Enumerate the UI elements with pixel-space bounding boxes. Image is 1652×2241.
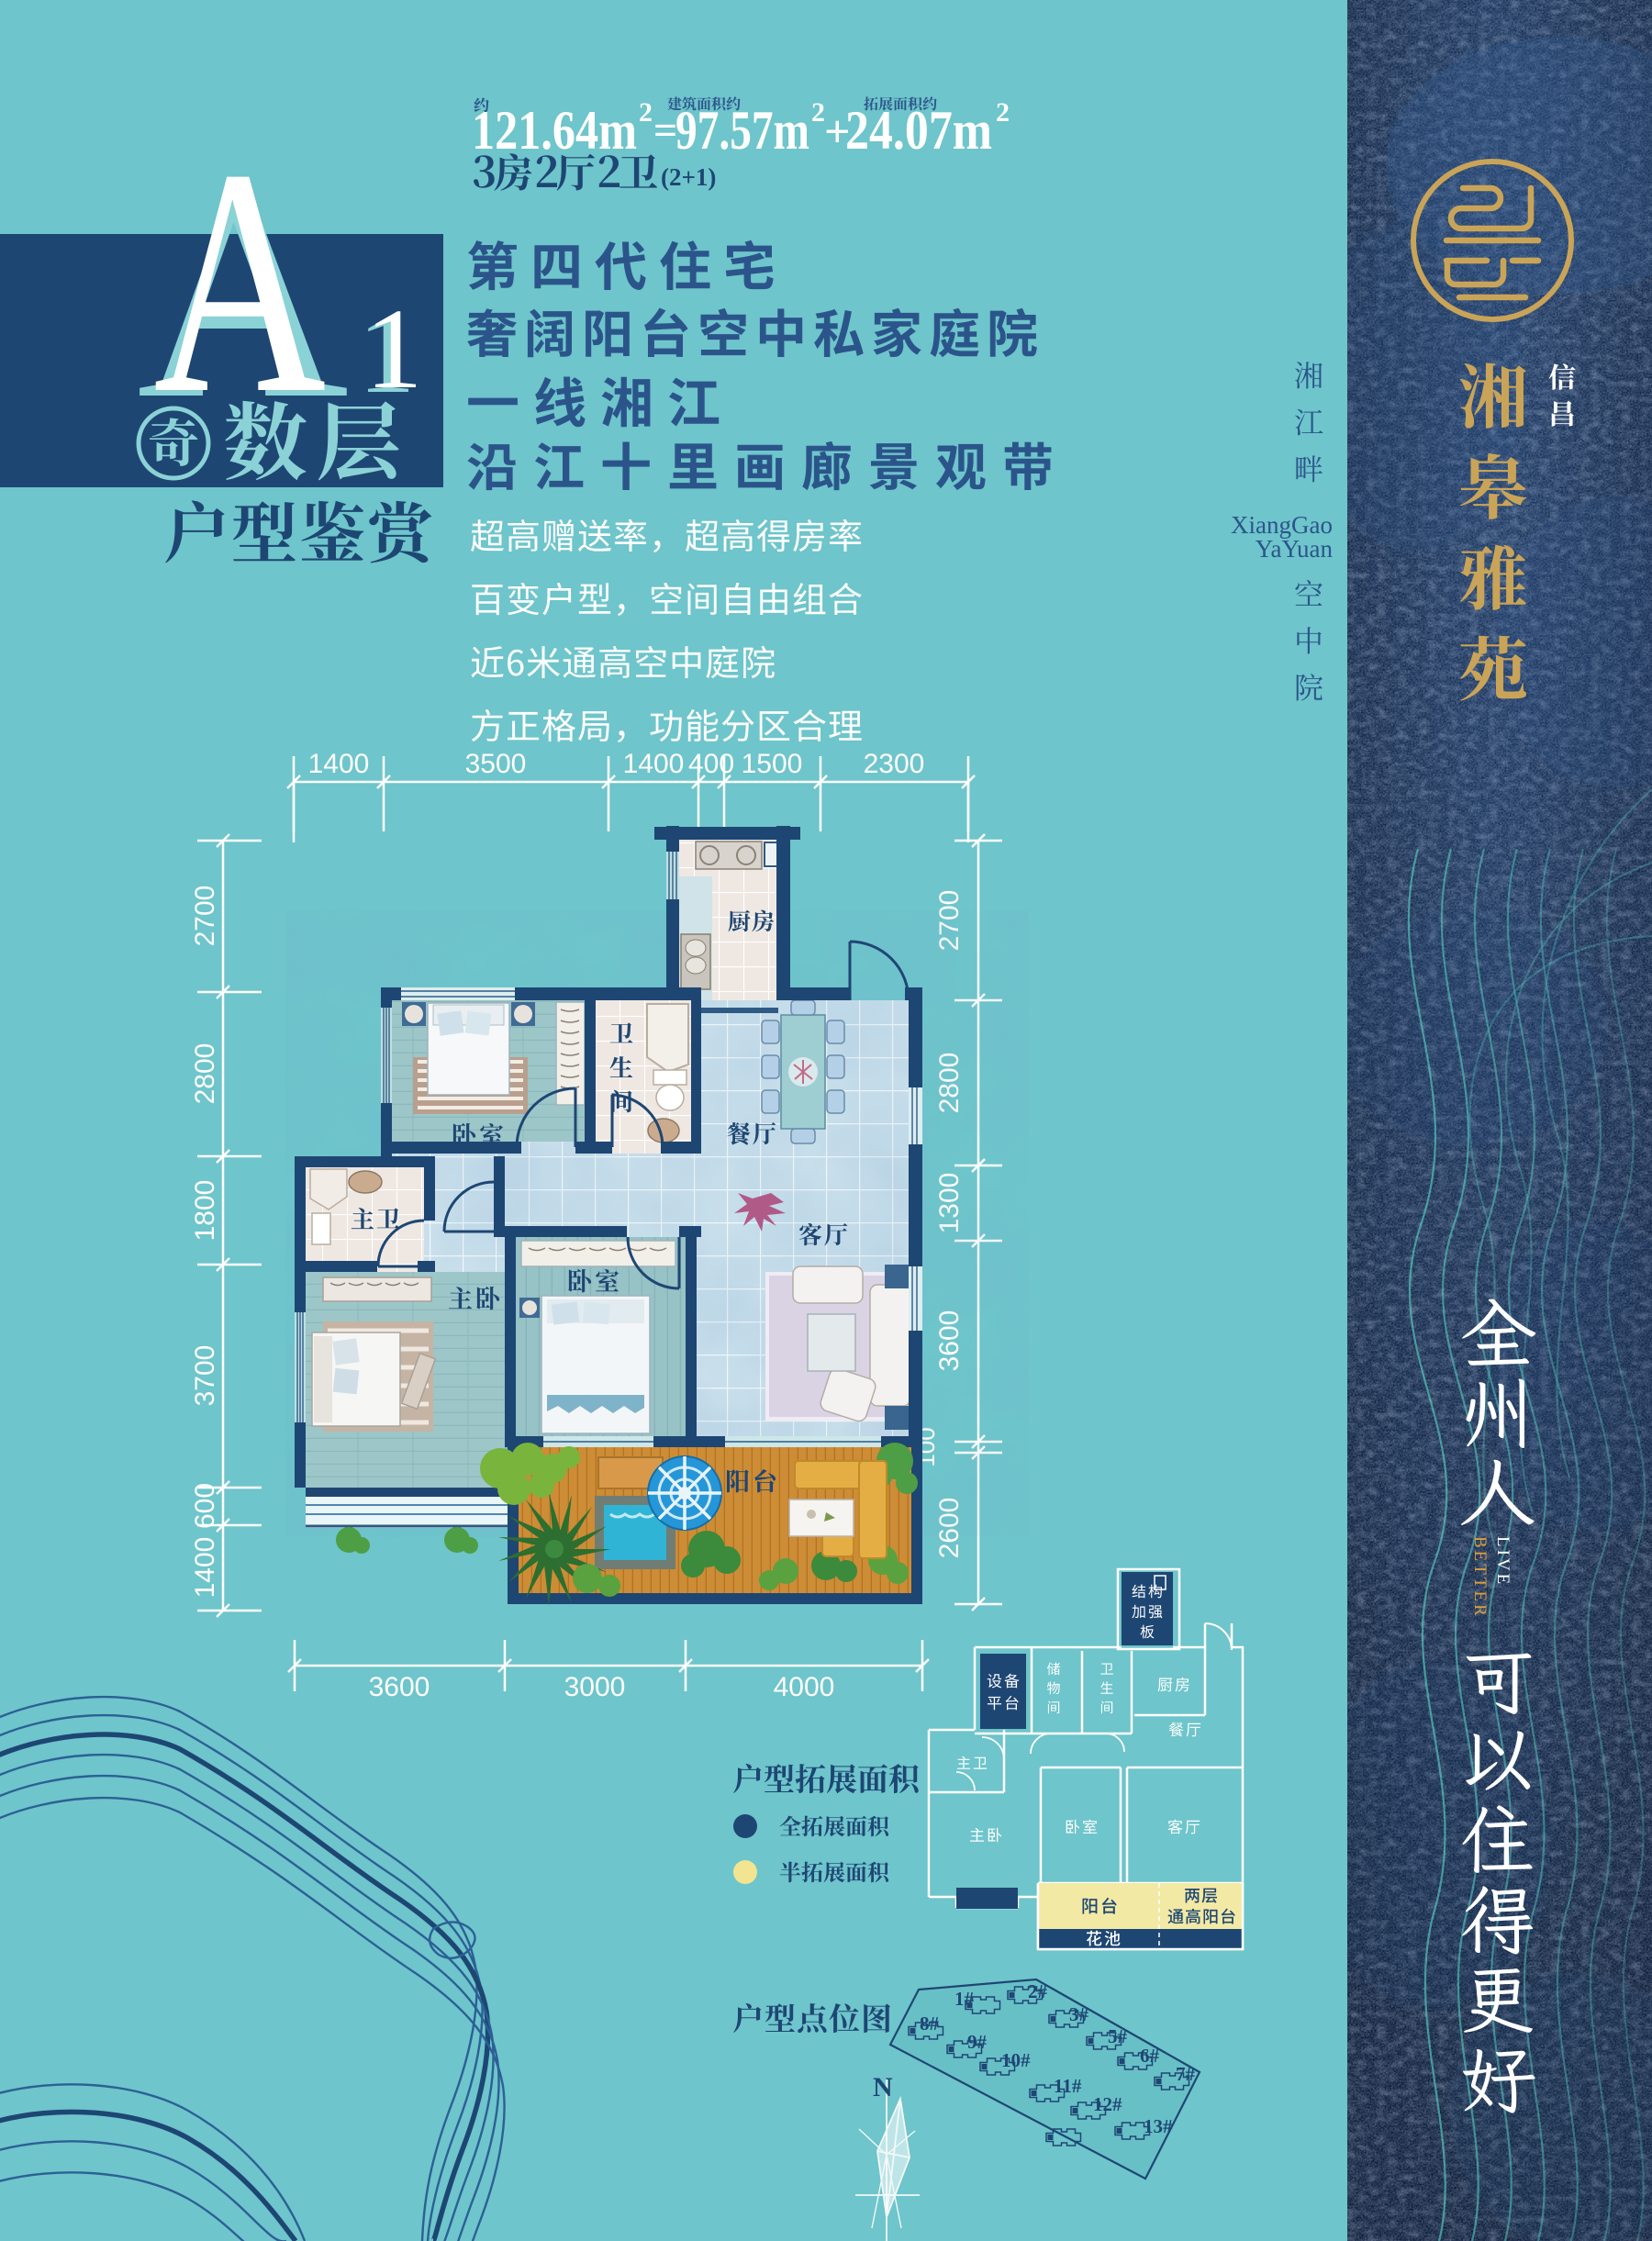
svg-text:10#: 10#	[1001, 2049, 1031, 2071]
svg-text:400: 400	[688, 749, 734, 779]
svg-text:YaYuan: YaYuan	[1256, 535, 1334, 563]
svg-text:600: 600	[190, 1483, 220, 1529]
svg-text:1: 1	[365, 286, 423, 413]
svg-text:8#: 8#	[920, 2012, 940, 2035]
svg-text:LIVE: LIVE	[1493, 1536, 1512, 1587]
svg-text:1400: 1400	[190, 1537, 220, 1599]
svg-text:3600: 3600	[369, 1672, 430, 1702]
svg-text:1#: 1#	[954, 1988, 975, 2010]
svg-text:(2+1): (2+1)	[661, 163, 716, 191]
svg-text:1400: 1400	[308, 749, 370, 779]
svg-text:9#: 9#	[967, 2031, 988, 2053]
svg-text:1300: 1300	[934, 1173, 965, 1234]
svg-text:7#: 7#	[1176, 2063, 1196, 2085]
svg-text:3#: 3#	[1069, 2003, 1089, 2025]
svg-text:2800: 2800	[934, 1053, 965, 1114]
svg-text:1800: 1800	[190, 1180, 220, 1242]
svg-text:2#: 2#	[1028, 1980, 1048, 2002]
svg-text:11#: 11#	[1054, 2075, 1082, 2097]
svg-text:5#: 5#	[1108, 2025, 1128, 2047]
svg-text:4000: 4000	[774, 1672, 835, 1702]
svg-text:2: 2	[639, 97, 653, 128]
svg-text:2800: 2800	[190, 1043, 220, 1105]
svg-text:1500: 1500	[742, 749, 803, 779]
svg-text:13#: 13#	[1144, 2115, 1173, 2137]
svg-text:3700: 3700	[190, 1345, 220, 1407]
svg-text:97.57m: 97.57m	[675, 100, 809, 161]
svg-text:2300: 2300	[864, 749, 925, 779]
svg-text:6#: 6#	[1140, 2045, 1160, 2067]
svg-text:12#: 12#	[1093, 2093, 1122, 2115]
svg-text:2700: 2700	[190, 886, 220, 947]
svg-text:2700: 2700	[934, 890, 965, 952]
svg-text:24.07m: 24.07m	[845, 100, 992, 161]
svg-text:3000: 3000	[564, 1672, 626, 1702]
svg-text:=: =	[653, 106, 677, 153]
svg-text:3600: 3600	[934, 1310, 965, 1372]
svg-text:A: A	[153, 102, 326, 460]
svg-text:3500: 3500	[465, 749, 527, 779]
svg-text:N: N	[873, 2072, 893, 2102]
svg-text:BETTER: BETTER	[1470, 1536, 1490, 1619]
svg-text:2: 2	[996, 97, 1010, 128]
svg-text:2: 2	[811, 97, 825, 128]
svg-text:2600: 2600	[934, 1498, 965, 1559]
svg-text:1400: 1400	[623, 749, 685, 779]
svg-text:121.64m: 121.64m	[472, 100, 637, 161]
